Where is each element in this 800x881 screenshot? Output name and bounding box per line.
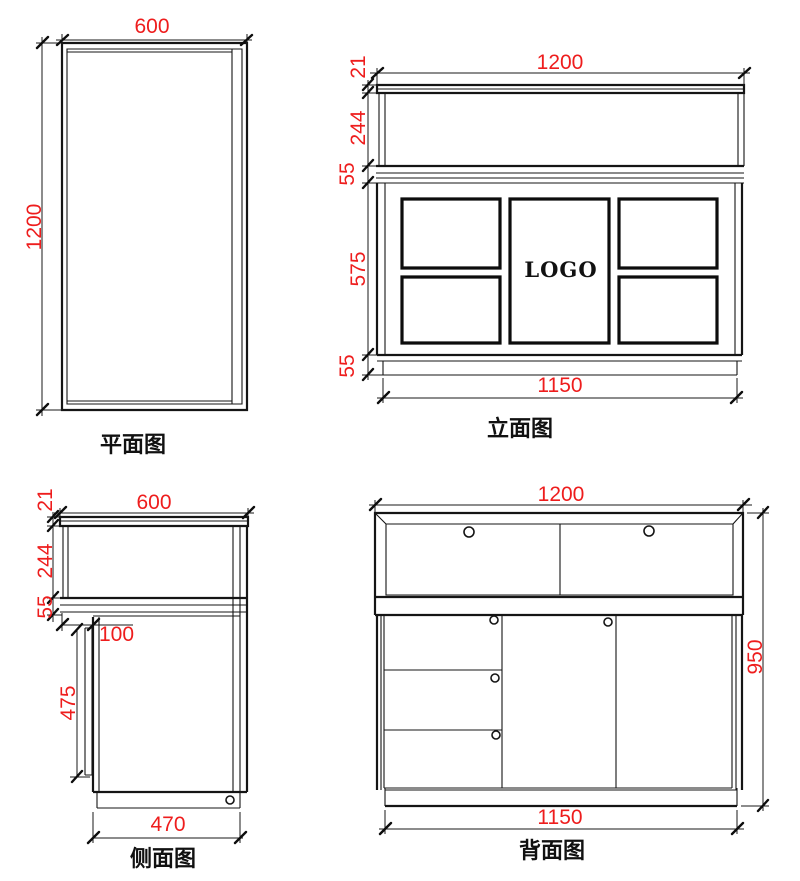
plan-depth-dim: 1200 xyxy=(23,204,46,251)
elevation-chain-dim-55-bottom: 55 xyxy=(336,354,359,377)
back-outer-frame xyxy=(375,513,743,806)
side-chain-dim-55: 55 xyxy=(34,595,57,618)
elevation-view-title: 立面图 xyxy=(487,416,553,442)
back-drawer1-lock xyxy=(490,616,498,624)
back-top-width-dim: 1200 xyxy=(538,483,585,506)
back-door-lock xyxy=(604,618,612,626)
logo-text: LOGO xyxy=(524,257,597,282)
elevation-chain-dim-244: 244 xyxy=(347,110,370,145)
side-inner-lines xyxy=(60,521,248,808)
side-adjustable-foot-hole xyxy=(226,796,234,804)
side-bottom-width-dim-470: 470 xyxy=(150,813,185,836)
back-height-dim-950: 950 xyxy=(744,639,767,674)
elevation-dimension-lines xyxy=(362,68,750,403)
side-top-width-dim: 600 xyxy=(136,491,171,514)
elevation-outer-frame xyxy=(376,85,744,355)
back-bottom-width-dim: 1150 xyxy=(537,806,582,829)
plan-width-dim: 600 xyxy=(134,15,169,38)
back-drawer3-lock xyxy=(492,731,500,739)
elevation-bottom-width-dim: 1150 xyxy=(537,374,582,397)
elevation-chain-dim-55-top: 55 xyxy=(336,162,359,185)
back-inner-lines xyxy=(375,513,743,806)
side-view-title: 侧面图 xyxy=(130,847,196,872)
plan-inner-lines xyxy=(67,49,242,404)
back-glass-door-lock-left xyxy=(464,527,474,537)
elevation-chain-dim-575: 575 xyxy=(347,251,370,286)
side-offset-dim-100: 100 xyxy=(99,623,134,646)
technical-drawing-canvas: 600 1200 平面图 1200 21 244 55 575 55 LOGO … xyxy=(0,0,800,881)
plan-view-title: 平面图 xyxy=(100,433,166,458)
elevation-chain-dim-21: 21 xyxy=(347,55,370,78)
back-drawer2-lock xyxy=(491,674,499,682)
side-chain-dim-21: 21 xyxy=(34,488,57,511)
plan-dimension-lines xyxy=(36,34,252,416)
plan-outer-frame xyxy=(62,43,247,410)
cad-drawing-sheet: 600 1200 平面图 1200 21 244 55 575 55 LOGO … xyxy=(0,0,800,881)
back-glass-door-lock-right xyxy=(644,526,654,536)
back-dimension-lines xyxy=(369,500,769,834)
elevation-dimension-ticks xyxy=(363,68,750,403)
side-back-panel-dim-475: 475 xyxy=(57,685,80,720)
elevation-top-width-dim: 1200 xyxy=(537,51,584,74)
side-chain-dim-244: 244 xyxy=(34,543,57,578)
side-outer-frame xyxy=(60,517,248,792)
side-view: 21 600 244 55 100 475 470 侧面图 xyxy=(34,488,254,872)
back-dimension-ticks xyxy=(370,499,768,834)
elevation-inner-lines xyxy=(376,89,744,375)
back-view: 1200 950 1150 背面图 xyxy=(369,483,769,864)
plan-view: 600 1200 平面图 xyxy=(23,15,252,458)
plan-dimension-ticks xyxy=(37,35,252,415)
elevation-view: 1200 21 244 55 575 55 LOGO 1150 立面图 xyxy=(336,51,750,442)
back-view-title: 背面图 xyxy=(519,839,585,864)
